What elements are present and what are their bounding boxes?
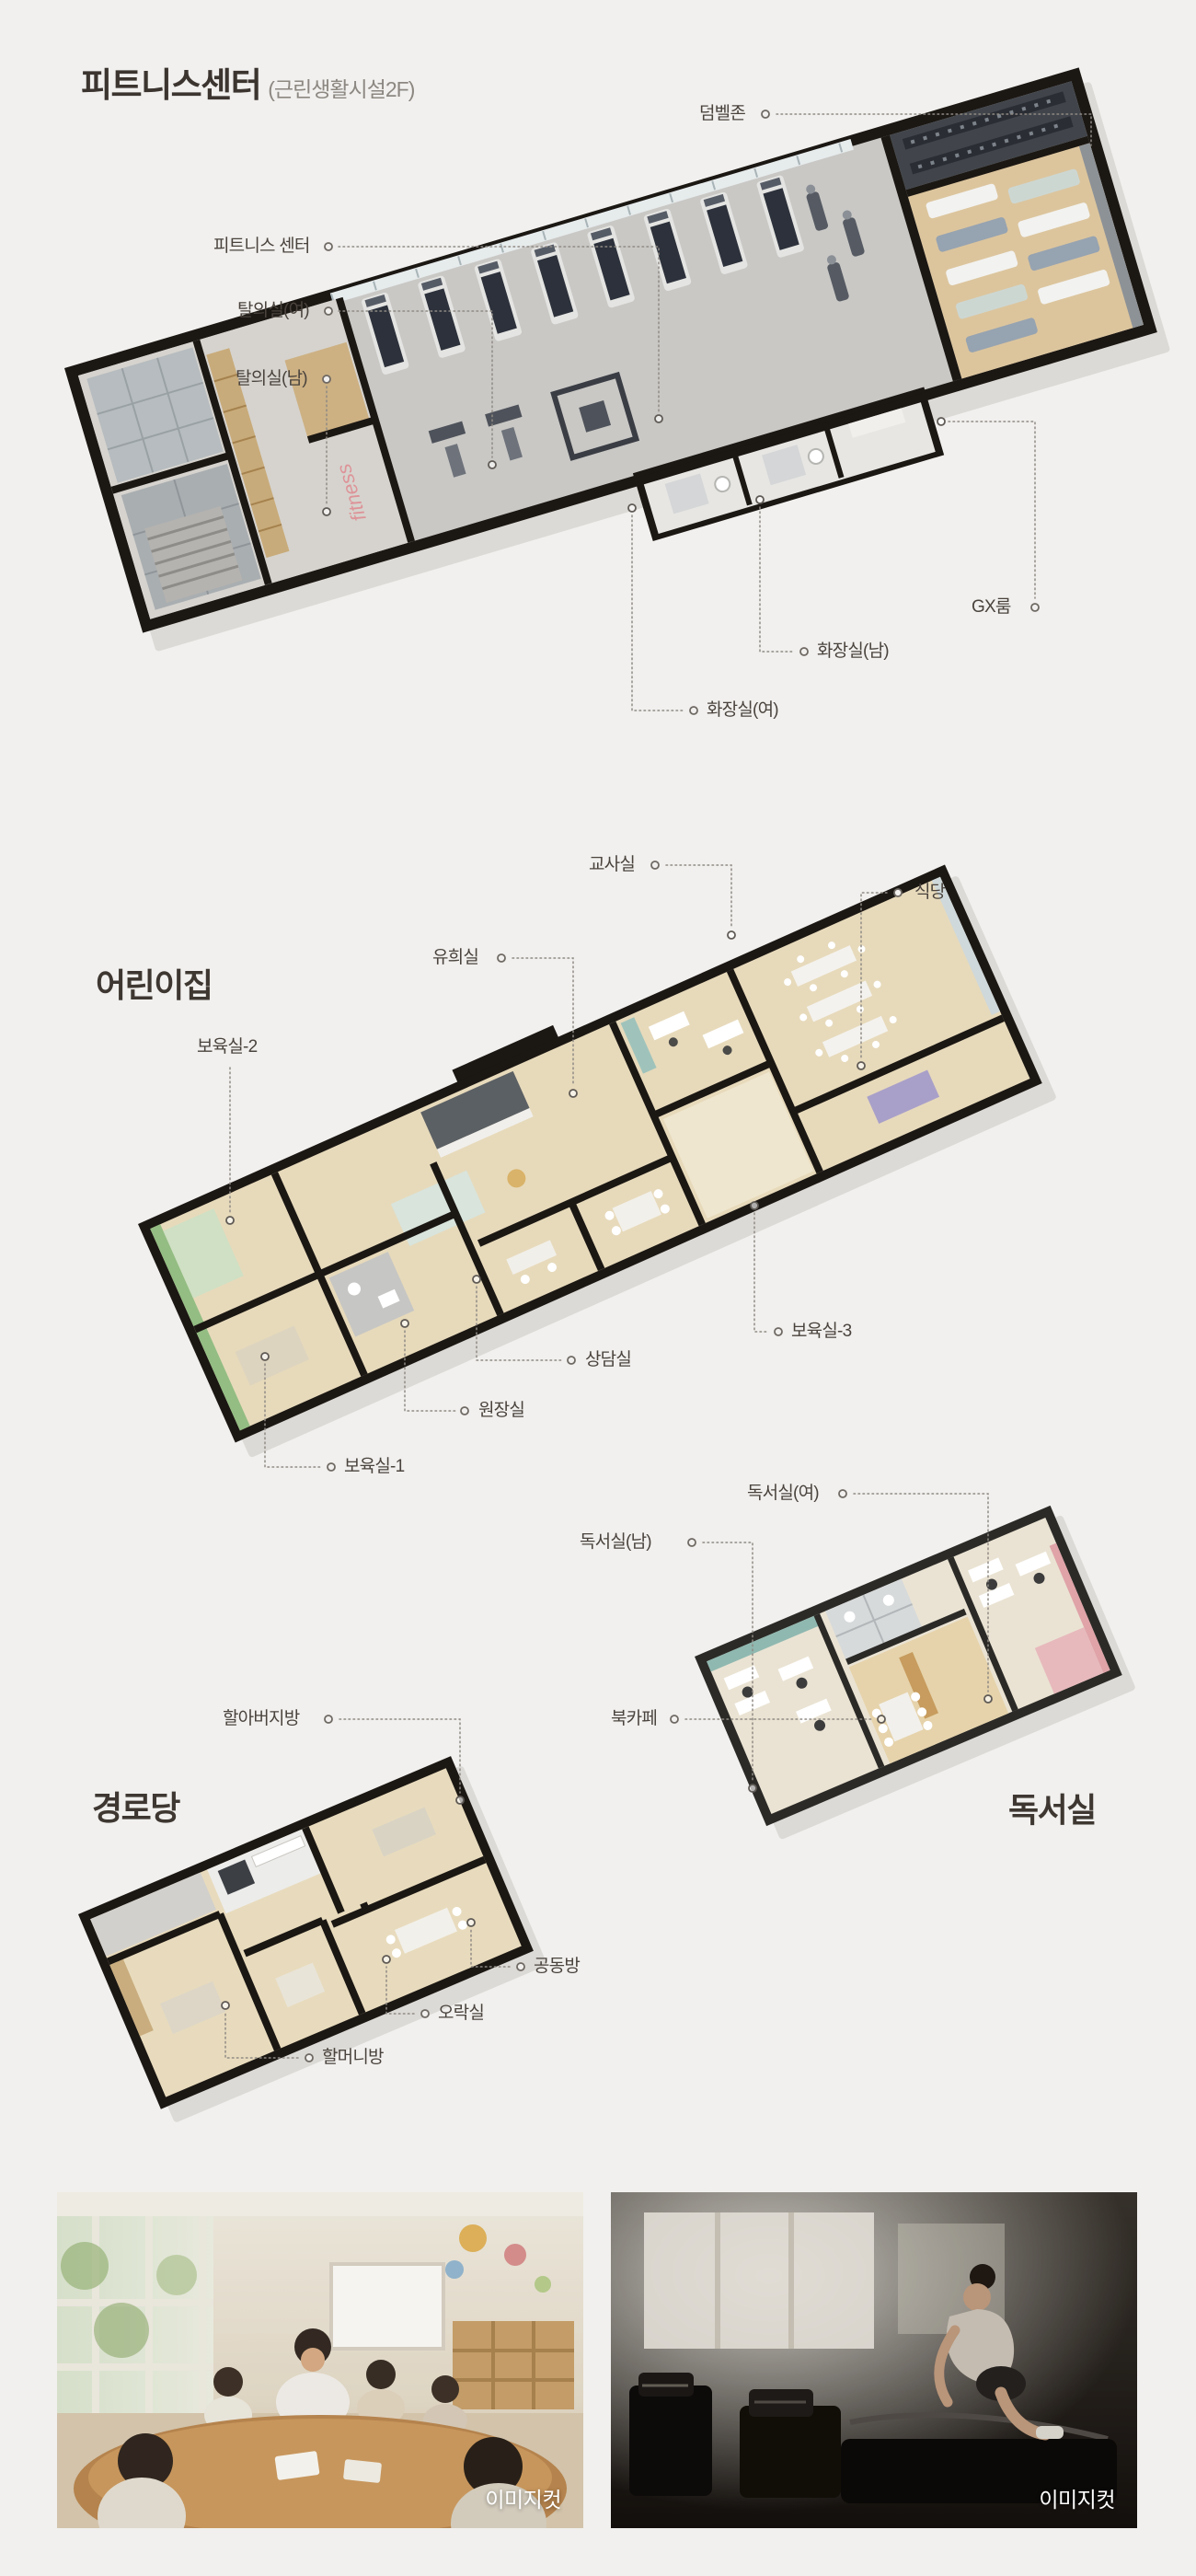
daycare-photo-caption: 이미지컷 — [485, 2482, 561, 2513]
fitness-title: 피트니스센터 — [81, 66, 260, 104]
label-dining-room: 식당 — [914, 882, 945, 904]
label-teachers-room: 교사실 — [589, 854, 635, 876]
daycare-title: 어린이집 — [96, 959, 212, 1007]
label-care-room-2: 보육실-2 — [197, 1036, 257, 1058]
senior-title: 경로당 — [92, 1782, 179, 1830]
label-locker-women: 탈의실(여) — [237, 300, 309, 322]
daycare-photo-art — [57, 2192, 583, 2528]
gym-photo-caption: 이미지컷 — [1039, 2482, 1115, 2513]
label-book-cafe: 북카페 — [611, 1708, 657, 1730]
reading-title: 독서실 — [1008, 1784, 1096, 1831]
label-gx-room: GX룸 — [972, 596, 1011, 618]
fitness-subtitle: (근린생활시설2F) — [268, 77, 414, 101]
label-common-room: 공동방 — [534, 1956, 580, 1978]
gym-photo-art — [611, 2192, 1137, 2528]
label-reading-women: 독서실(여) — [747, 1483, 819, 1505]
page-title: 피트니스센터(근린생활시설2F) — [81, 57, 414, 107]
label-reading-men: 독서실(남) — [580, 1531, 651, 1554]
label-locker-men: 탈의실(남) — [236, 368, 307, 390]
label-toilet-men: 화장실(남) — [817, 641, 889, 663]
label-toilet-women: 화장실(여) — [707, 699, 778, 722]
label-counsel-room: 상담실 — [585, 1349, 631, 1371]
label-recreation-room: 오락실 — [438, 2003, 484, 2025]
label-play-room: 유희실 — [432, 947, 478, 969]
label-care-room-3: 보육실-3 — [791, 1321, 851, 1343]
daycare-photo: 이미지컷 — [57, 2192, 583, 2528]
brochure-page: fitness — [0, 0, 1196, 2576]
label-grandmother-room: 할머니방 — [322, 2047, 384, 2069]
gym-photo: 이미지컷 — [611, 2192, 1137, 2528]
leader-lines-layer — [0, 0, 1196, 2576]
label-directors-room: 원장실 — [478, 1400, 524, 1422]
label-dumbbell-zone: 덤벨존 — [699, 103, 745, 125]
label-care-room-1: 보육실-1 — [344, 1456, 404, 1478]
label-grandfather-room: 할아버지방 — [223, 1708, 299, 1730]
label-fitness-center: 피트니스 센터 — [213, 236, 310, 258]
